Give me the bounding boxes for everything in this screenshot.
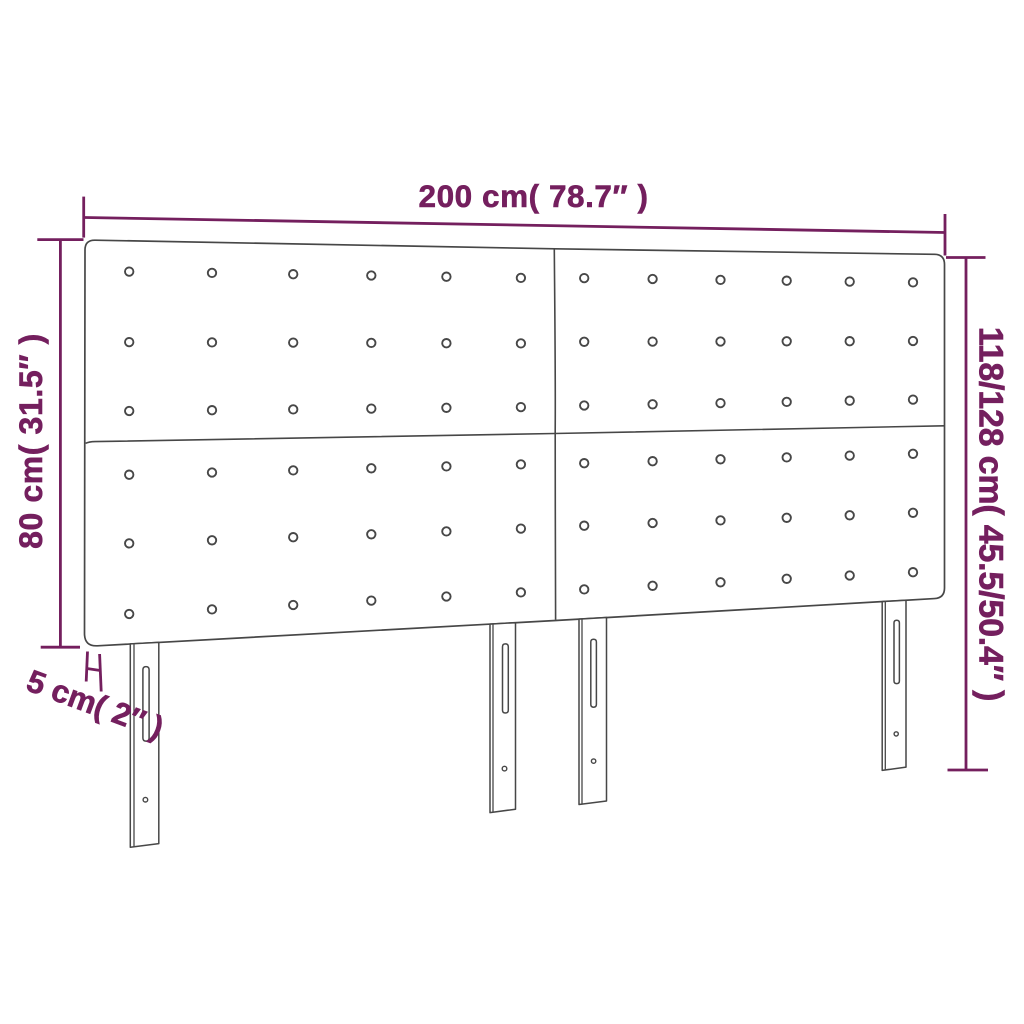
svg-text:200 cm( 78.7″ ): 200 cm( 78.7″ ) [419,178,649,214]
svg-text:80 cm( 31.5″ ): 80 cm( 31.5″ ) [13,333,49,549]
svg-text:118/128 cm( 45.5/50.4″ ): 118/128 cm( 45.5/50.4″ ) [972,327,1010,701]
